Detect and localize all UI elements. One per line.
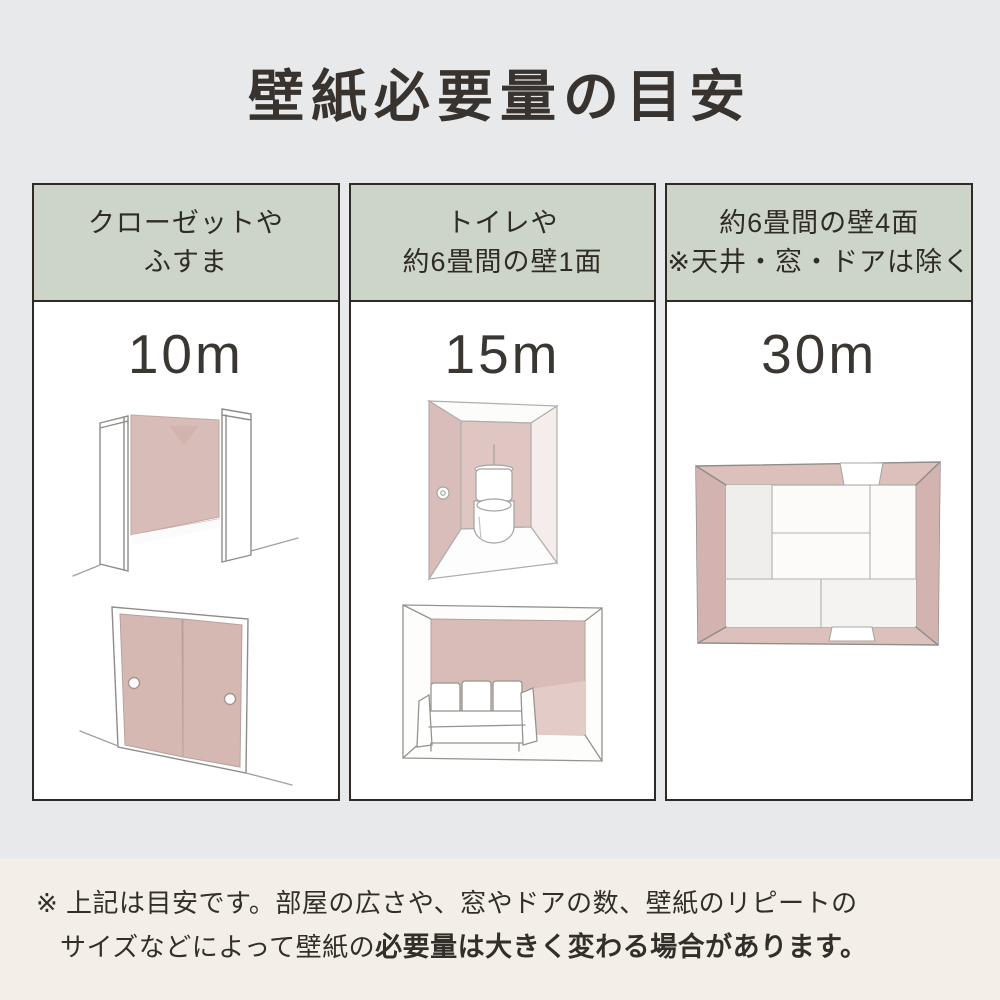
card-closet-body: 10m: [34, 302, 338, 799]
toilet-meter-value: 15m: [445, 324, 561, 385]
card-four-walls-body: 30m: [667, 302, 971, 799]
card-toilet-header-line1: トイレや: [447, 204, 559, 243]
card-closet-fusuma: クローゼットや ふすま 10m: [32, 183, 340, 801]
page-title: 壁紙必要量の目安: [0, 52, 1000, 133]
toilet-room-illustration: [415, 393, 590, 585]
sofa-room-illustration: [395, 595, 610, 777]
closet-illustration: [70, 395, 302, 597]
card-closet-header: クローゼットや ふすま: [34, 185, 338, 302]
footnote-line1: ※ 上記は目安です。部屋の広さや、窓やドアの数、壁紙のリピートの: [36, 884, 1000, 922]
card-closet-header-line2: ふすま: [144, 243, 228, 282]
card-four-walls: 約6畳間の壁4面 ※天井・窓・ドアは除く 30m: [665, 183, 973, 801]
footnote-area: ※ 上記は目安です。部屋の広さや、窓やドアの数、壁紙のリピートの サイズなどによ…: [0, 859, 1000, 1000]
card-toilet-body: 15m: [351, 302, 655, 799]
footnote-line2: サイズなどによって壁紙の必要量は大きく変わる場合があります。: [60, 928, 1000, 966]
footnote-line2-bold: 必要量は大きく変わる場合があります。: [375, 932, 867, 962]
card-four-walls-header-line2: ※天井・窓・ドアは除く: [667, 243, 971, 282]
four-walls-meter-value: 30m: [761, 324, 877, 385]
tatami-room-top-view-illustration: [690, 457, 948, 652]
fusuma-illustration: [70, 599, 302, 791]
card-closet-header-line1: クローゼットや: [88, 204, 284, 243]
estimate-columns: クローゼットや ふすま 10m: [32, 183, 973, 801]
card-toilet-header-line2: 約6畳間の壁1面: [402, 243, 602, 282]
closet-meter-value: 10m: [128, 324, 244, 385]
card-toilet-one-wall: トイレや 約6畳間の壁1面 15m: [349, 183, 657, 801]
footnote-line2-regular: サイズなどによって壁紙の: [60, 932, 375, 962]
card-four-walls-header-line1: 約6畳間の壁4面: [719, 204, 919, 243]
card-toilet-header: トイレや 約6畳間の壁1面: [351, 185, 655, 302]
card-four-walls-header: 約6畳間の壁4面 ※天井・窓・ドアは除く: [667, 185, 971, 302]
